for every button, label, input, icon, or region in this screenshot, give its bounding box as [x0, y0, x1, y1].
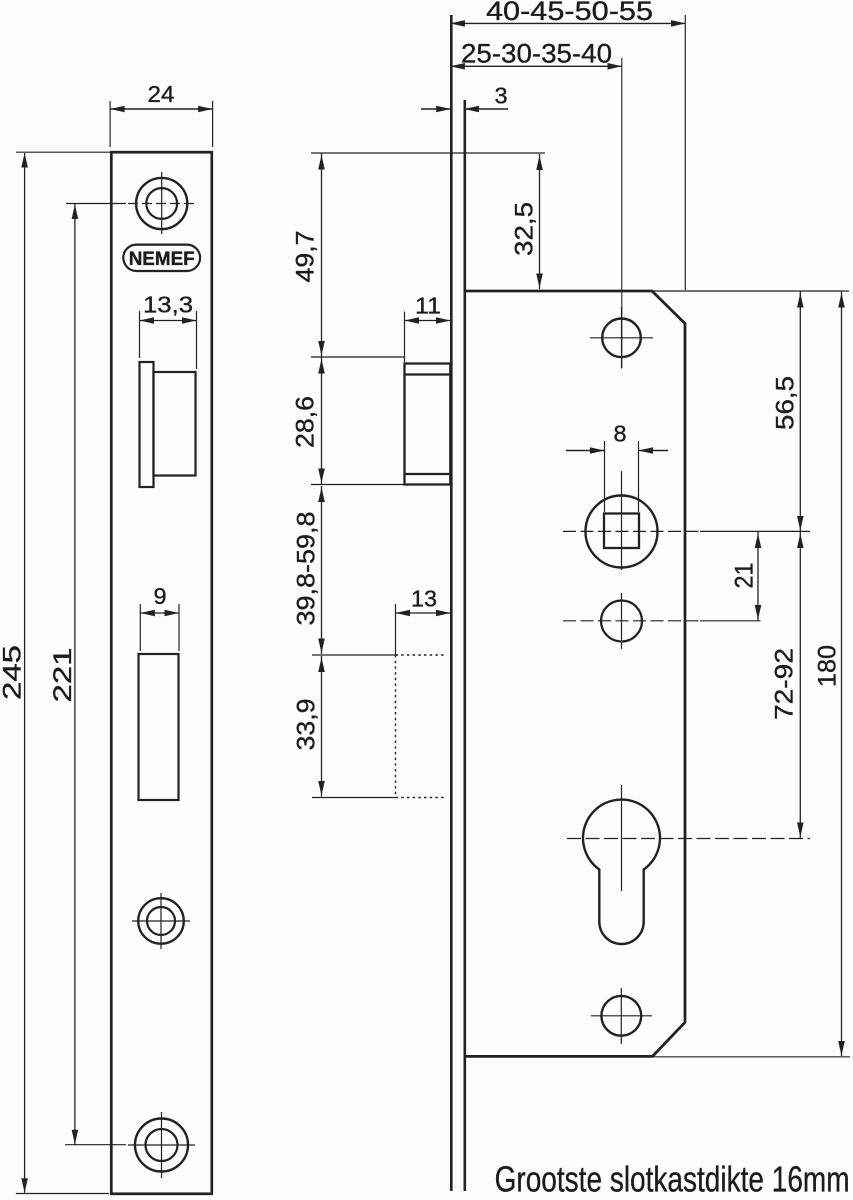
svg-text:39,8-59,8: 39,8-59,8: [293, 512, 321, 626]
svg-text:11: 11: [415, 292, 441, 318]
svg-text:25-30-35-40: 25-30-35-40: [461, 39, 612, 69]
svg-text:180: 180: [814, 645, 842, 687]
svg-text:13: 13: [411, 585, 437, 611]
svg-text:24: 24: [148, 81, 175, 107]
svg-text:28,6: 28,6: [292, 396, 320, 448]
svg-text:3: 3: [494, 82, 507, 108]
svg-text:32,5: 32,5: [511, 202, 539, 256]
svg-text:9: 9: [153, 583, 166, 609]
svg-text:13,3: 13,3: [143, 291, 193, 317]
svg-text:40-45-50-55: 40-45-50-55: [486, 0, 653, 26]
svg-text:56,5: 56,5: [772, 376, 800, 430]
svg-text:221: 221: [49, 648, 77, 703]
svg-text:21: 21: [731, 563, 759, 589]
svg-text:NEMEF: NEMEF: [129, 249, 195, 270]
svg-text:Grootste slotkastdikte 16mm: Grootste slotkastdikte 16mm: [495, 1159, 850, 1200]
svg-text:49,7: 49,7: [292, 231, 320, 283]
svg-text:245: 245: [0, 645, 27, 700]
svg-text:33,9: 33,9: [293, 699, 321, 751]
svg-text:72-92: 72-92: [771, 648, 799, 720]
svg-text:8: 8: [613, 420, 626, 446]
